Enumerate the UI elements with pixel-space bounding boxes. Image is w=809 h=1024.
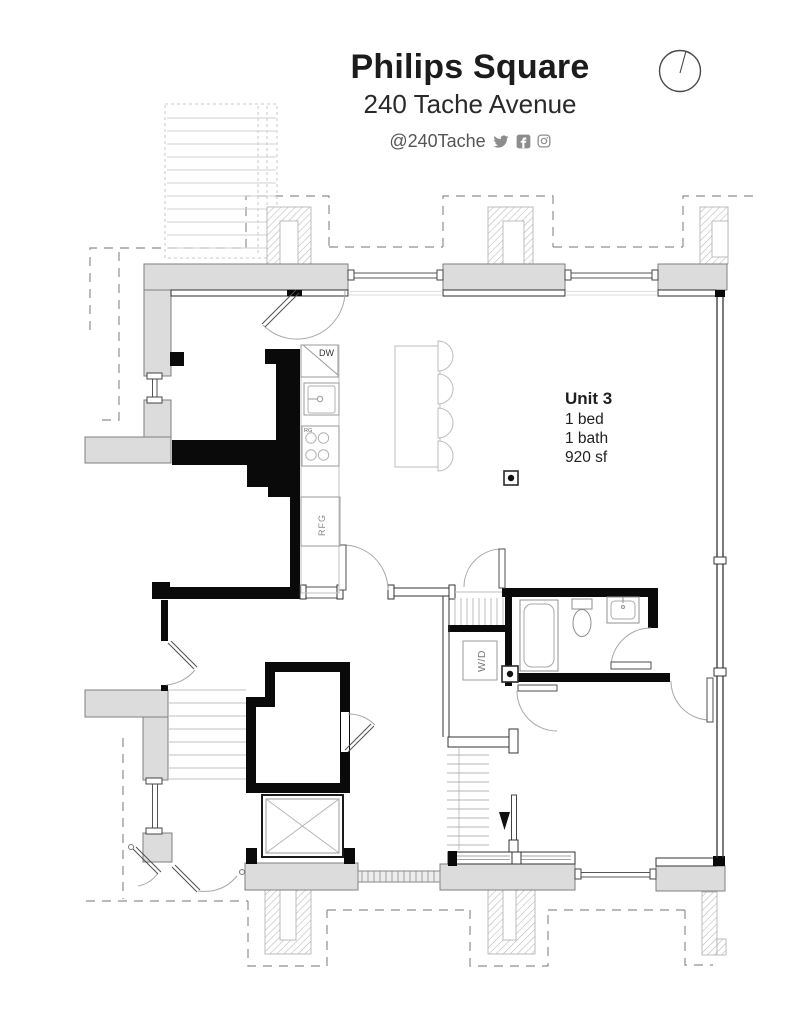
unit-info: Unit 3 1 bed 1 bath 920 sf	[565, 389, 612, 466]
floorplan-sheet: Philips Square 240 Tache Avenue @240Tach…	[0, 0, 809, 1024]
building-stair-treads	[168, 690, 246, 779]
overhead-dashed-outlines	[86, 196, 755, 966]
closet-hangers	[447, 748, 489, 850]
elevator	[262, 795, 343, 857]
unit-beds: 1 bed	[565, 411, 604, 428]
toilet	[572, 599, 592, 637]
unit-name: Unit 3	[565, 389, 612, 408]
windows-and-wall-faces	[146, 270, 716, 879]
kitchen-counter	[301, 345, 339, 593]
structural-columns	[265, 207, 728, 955]
refrigerator-label: RFG	[317, 514, 327, 536]
entry-steps	[455, 598, 503, 625]
dishwasher-label: DW	[319, 348, 334, 358]
walkway-strip	[358, 871, 440, 882]
kitchen-sink	[304, 383, 339, 415]
unit-baths: 1 bath	[565, 430, 608, 447]
unit-area: 920 sf	[565, 449, 608, 466]
partition-walls	[300, 297, 726, 858]
range-label: RG	[304, 428, 312, 434]
plan-labels: DW RG RFG W/D	[304, 348, 488, 672]
entry-direction-arrow	[499, 812, 510, 830]
kitchen	[301, 341, 453, 593]
north-arrow-icon	[660, 51, 701, 92]
bathtub	[520, 600, 558, 671]
kitchen-island	[395, 346, 440, 467]
exterior-stair-above	[165, 104, 277, 258]
bathroom	[520, 597, 639, 671]
floor-plan-drawing: DW RG RFG W/D Unit 3 1 bed 1 bath 920 sf	[0, 0, 809, 1024]
bathroom-sink	[607, 597, 639, 623]
washer-dryer-label: W/D	[476, 650, 488, 672]
shaft-door-opening	[341, 712, 349, 752]
